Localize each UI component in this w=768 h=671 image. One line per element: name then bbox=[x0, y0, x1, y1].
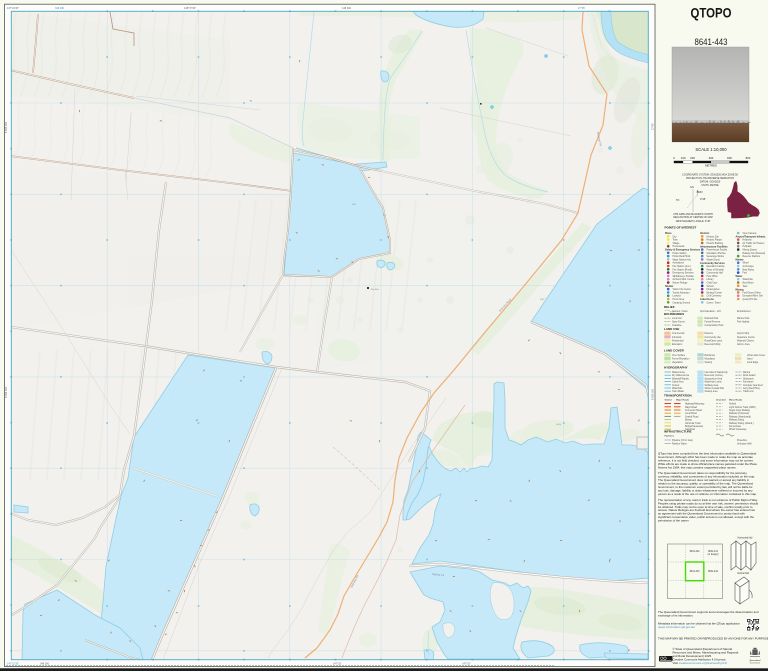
svg-text:SES/Emerg. Position: SES/Emerg. Position bbox=[673, 275, 695, 278]
svg-text:Powerhouse Facility: Powerhouse Facility bbox=[707, 249, 728, 252]
svg-text:Infrastructure Facilities: Infrastructure Facilities bbox=[700, 245, 728, 248]
svg-text:Camping Ground: Camping Ground bbox=[673, 301, 691, 304]
svg-text:Railway Siding (Aband.): Railway Siding (Aband.) bbox=[729, 422, 754, 425]
svg-text:8641-441: 8641-441 bbox=[708, 551, 718, 553]
svg-text:Forest Plantation: Forest Plantation bbox=[672, 357, 690, 360]
svg-text:147°22′30″: 147°22′30″ bbox=[7, 7, 19, 10]
svg-text:Historic: Historic bbox=[700, 232, 710, 235]
svg-text:Substation Pwrhse: Substation Pwrhse bbox=[707, 252, 727, 255]
svg-text:Minor Roads: Minor Roads bbox=[729, 400, 743, 402]
svg-text:Fuel: Fuel bbox=[743, 273, 748, 275]
svg-text:Ambulance: Ambulance bbox=[673, 262, 685, 265]
svg-text:148°37′30″: 148°37′30″ bbox=[184, 7, 196, 10]
svg-text:Lookout: Lookout bbox=[673, 295, 682, 298]
svg-text:Spot Elevation - 123: Spot Elevation - 123 bbox=[700, 310, 721, 313]
svg-text:Village: Village bbox=[673, 243, 681, 245]
svg-text:Canal Area: Canal Area bbox=[672, 381, 684, 384]
svg-text:Community Services: Community Services bbox=[700, 262, 725, 265]
svg-text:School: School bbox=[707, 286, 715, 288]
svg-text:TN: TN bbox=[676, 199, 680, 202]
svg-text:8641-443: 8641-443 bbox=[690, 571, 700, 573]
svg-text:Mia Mia: Mia Mia bbox=[371, 289, 379, 291]
svg-text:Library: Library bbox=[707, 278, 715, 281]
svg-text:Railway Siding: Railway Siding bbox=[729, 420, 745, 422]
svg-text:346 000: 346 000 bbox=[40, 663, 50, 666]
svg-text:Boat Ramp: Boat Ramp bbox=[743, 268, 755, 271]
svg-text:Reservoir/Utility: Reservoir/Utility bbox=[705, 343, 722, 346]
svg-text:Foreshore: Foreshore bbox=[743, 381, 754, 384]
svg-text:Marina: Marina bbox=[743, 371, 751, 374]
svg-text:Tidal Limit: Tidal Limit bbox=[743, 390, 754, 393]
svg-text:6 935 000: 6 935 000 bbox=[5, 121, 8, 133]
svg-text:Unknown Well: Unknown Well bbox=[737, 443, 752, 445]
svg-text:Helipads: Helipads bbox=[743, 246, 753, 248]
svg-text:SCALE 1:10,000: SCALE 1:10,000 bbox=[695, 147, 727, 152]
svg-text:Police Station: Police Station bbox=[673, 252, 688, 255]
svg-text:LAND COVER: LAND COVER bbox=[664, 349, 685, 353]
svg-text:Anchorage: Anchorage bbox=[743, 265, 755, 268]
svg-text:DECLINATION AT CENTRE OF MAP: DECLINATION AT CENTRE OF MAP bbox=[673, 216, 713, 219]
svg-text:Post Office: Post Office bbox=[707, 275, 719, 278]
svg-text:Town: Town bbox=[673, 240, 679, 242]
svg-text:Vegetation: Vegetation bbox=[672, 361, 684, 364]
svg-text:Compare Sea Reef: Compare Sea Reef bbox=[743, 384, 763, 387]
svg-text:Visit creativecommons.org/lice: Visit creativecommons.org/licenses/by/4.… bbox=[673, 661, 730, 665]
svg-text:Sealed: Sealed bbox=[665, 400, 673, 402]
svg-text:person as a result of the use: person as a result of the use or relianc… bbox=[658, 492, 757, 496]
svg-text:Medical Centre: Medical Centre bbox=[707, 291, 723, 294]
svg-text:Heliports: Heliports bbox=[743, 239, 753, 242]
svg-text:Fire Station (Rural): Fire Station (Rural) bbox=[673, 268, 693, 271]
svg-text:Major Road: Major Road bbox=[685, 406, 698, 409]
svg-text:8641-442: 8641-442 bbox=[708, 571, 718, 573]
svg-text:600: 600 bbox=[727, 156, 732, 160]
svg-text:Waterhole: Waterhole bbox=[743, 278, 754, 281]
svg-text:exchange of its information.: exchange of its information. bbox=[658, 614, 694, 618]
svg-text:HYDROGRAPHY: HYDROGRAPHY bbox=[664, 366, 688, 370]
svg-text:Pipelines: Pipelines bbox=[665, 436, 675, 438]
svg-text:Major Station Hist.: Major Station Hist. bbox=[673, 258, 692, 261]
svg-text:Highway/Motorway: Highway/Motorway bbox=[685, 403, 705, 406]
svg-text:Bore/Drain: Bore/Drain bbox=[743, 282, 755, 285]
svg-text:Woodland: Woodland bbox=[705, 358, 716, 360]
svg-text:Marine: Marine bbox=[736, 259, 745, 262]
svg-text:RELIEF: RELIEF bbox=[664, 305, 675, 309]
svg-text:Visitor Info Centre: Visitor Info Centre bbox=[673, 288, 692, 291]
svg-text:Sugar Cane Railway: Sugar Cane Railway bbox=[729, 409, 751, 412]
svg-text:8641-444: 8641-444 bbox=[690, 551, 700, 553]
svg-text:Government: Government bbox=[750, 662, 761, 665]
svg-text:Bridge/Causeway: Bridge/Causeway bbox=[685, 425, 704, 428]
svg-text:Airfield: Airfield bbox=[729, 403, 737, 406]
svg-text:GN: GN bbox=[690, 186, 694, 189]
svg-text:200: 200 bbox=[690, 156, 695, 160]
svg-text:Departure Centre: Departure Centre bbox=[737, 336, 755, 339]
svg-text:Pipeline (Oil or Gas): Pipeline (Oil or Gas) bbox=[672, 439, 693, 442]
svg-text:Waterhole: Waterhole bbox=[672, 387, 683, 390]
svg-text:8641-443: 8641-443 bbox=[695, 37, 728, 47]
svg-text:Railway (Abandoned): Railway (Abandoned) bbox=[729, 415, 751, 418]
svg-text:Rainforest: Rainforest bbox=[705, 354, 716, 357]
svg-text:Place: Place bbox=[665, 232, 672, 235]
svg-text:Spillway Area: Spillway Area bbox=[705, 384, 720, 387]
svg-text:Airport/Transport Infrastr.: Airport/Transport Infrastr. bbox=[736, 236, 767, 239]
svg-text:Marine Park: Marine Park bbox=[737, 317, 750, 320]
svg-text:Sewerage Works: Sewerage Works bbox=[707, 255, 725, 258]
svg-text:Fire Station (Aux.): Fire Station (Aux.) bbox=[673, 265, 692, 268]
svg-text:Culvert: Culvert bbox=[672, 384, 680, 387]
svg-text:(430): (430) bbox=[556, 424, 561, 426]
svg-text:Admin. Area: Admin. Area bbox=[737, 343, 750, 346]
svg-text:BOUNDARIES: BOUNDARIES bbox=[664, 312, 684, 316]
svg-text:Place of Worship: Place of Worship bbox=[707, 268, 725, 271]
svg-text:Tourist Attraction: Tourist Attraction bbox=[673, 291, 691, 294]
svg-text:Urban-tank Cover: Urban-tank Cover bbox=[747, 354, 765, 357]
svg-text:Air Traffic Ctrl Towers: Air Traffic Ctrl Towers bbox=[743, 242, 766, 245]
svg-text:THIS MAP MAY BE PRINTED OR REP: THIS MAP MAY BE PRINTED OR REPRODUCED BY… bbox=[658, 637, 768, 641]
svg-text:Dry Watercourse: Dry Watercourse bbox=[672, 374, 690, 377]
svg-text:Community Use: Community Use bbox=[705, 336, 722, 339]
svg-text:Railway Stn (Disused): Railway Stn (Disused) bbox=[743, 252, 766, 255]
svg-text:Kindergarten: Kindergarten bbox=[707, 288, 721, 291]
svg-text:Saline Coastal Flat: Saline Coastal Flat bbox=[705, 387, 725, 390]
svg-text:Label Icons: Label Icons bbox=[700, 298, 714, 301]
svg-text:INFRASTRUCTURE: INFRASTRUCTURE bbox=[664, 430, 692, 434]
svg-text:Connector Road: Connector Road bbox=[685, 409, 702, 412]
svg-text:Historic Plaque: Historic Plaque bbox=[707, 239, 723, 242]
svg-text:Vine Surface: Vine Surface bbox=[672, 354, 686, 357]
svg-text:Embankment: Embankment bbox=[737, 310, 751, 313]
svg-text:Ambient Med. Centre: Ambient Med. Centre bbox=[673, 278, 695, 281]
svg-text:Waterhole Limits: Waterhole Limits bbox=[705, 381, 723, 384]
svg-text:Major Roads: Major Roads bbox=[676, 400, 690, 402]
svg-text:Reservoir (online): Reservoir (online) bbox=[705, 374, 723, 377]
svg-text:Sand: Sand bbox=[747, 358, 753, 360]
svg-text:Airport Strip: Airport Strip bbox=[737, 332, 750, 335]
svg-text:Waterski Observ.: Waterski Observ. bbox=[737, 339, 755, 342]
svg-text:27°35′: 27°35′ bbox=[578, 7, 586, 10]
svg-text:Picnic Area: Picnic Area bbox=[673, 298, 685, 301]
svg-text:(in design): (in design) bbox=[708, 554, 719, 556]
svg-text:Swamp: Swamp bbox=[705, 362, 713, 364]
svg-text:POINTS OF INTEREST: POINTS OF INTEREST bbox=[665, 225, 697, 229]
svg-text:Forest Reserve: Forest Reserve bbox=[705, 321, 721, 324]
svg-text:Horizontal fold: Horizontal fold bbox=[738, 537, 753, 540]
svg-text:Rock Awash: Rock Awash bbox=[743, 374, 756, 377]
svg-text:346 000: 346 000 bbox=[55, 7, 65, 10]
svg-text:Powerline: Powerline bbox=[737, 439, 748, 442]
svg-text:Commercial: Commercial bbox=[672, 332, 685, 335]
svg-text:Unsealed: Unsealed bbox=[716, 400, 726, 402]
svg-text:Vehicular Track: Vehicular Track bbox=[685, 422, 702, 425]
svg-text:Local Gvt: Local Gvt bbox=[672, 317, 682, 320]
svg-text:147°25′: 147°25′ bbox=[333, 663, 342, 666]
svg-text:800: 800 bbox=[746, 156, 751, 160]
svg-text:6 934 000: 6 934 000 bbox=[5, 386, 8, 398]
svg-text:Industrial: Industrial bbox=[672, 336, 682, 339]
svg-text:Child Care: Child Care bbox=[707, 282, 719, 285]
svg-text:Reserve Stations: Reserve Stations bbox=[743, 255, 761, 258]
svg-text:147°25′: 147°25′ bbox=[462, 663, 471, 666]
svg-text:Swamp area: Swamp area bbox=[705, 390, 719, 393]
svg-text:6 933 000: 6 933 000 bbox=[652, 388, 655, 400]
svg-text:Shipwreck: Shipwreck bbox=[743, 377, 754, 380]
svg-text:Quarry/Pit Site: Quarry/Pit Site bbox=[743, 298, 759, 301]
svg-text:State Forest: State Forest bbox=[672, 321, 685, 324]
svg-text:Intermittent Waterbody: Intermittent Waterbody bbox=[705, 371, 729, 374]
svg-text:Land Edge: Land Edge bbox=[747, 362, 759, 364]
svg-text:400: 400 bbox=[709, 156, 714, 160]
svg-text:Conservation Park: Conservation Park bbox=[705, 324, 725, 327]
svg-text:148 000: 148 000 bbox=[342, 7, 352, 10]
svg-text:Education: Education bbox=[672, 343, 683, 346]
svg-text:Fish Habitat: Fish Habitat bbox=[737, 321, 750, 324]
svg-text:Watercourse: Watercourse bbox=[672, 371, 686, 374]
svg-text:Mining: Mining bbox=[736, 288, 745, 291]
svg-text:TRANSPORTATION: TRANSPORTATION bbox=[664, 394, 692, 398]
svg-text:Nature Refuge: Nature Refuge bbox=[673, 282, 689, 285]
svg-text:Rural/Open Land: Rural/Open Land bbox=[705, 339, 723, 342]
svg-text:Waterfall Rapids: Waterfall Rapids bbox=[672, 377, 690, 380]
svg-text:Extractive/Mine Site: Extractive/Mine Site bbox=[743, 295, 764, 298]
svg-text:Sealed Road: Sealed Road bbox=[685, 416, 699, 418]
svg-text:GRID MAGNETIC ANGLE: 0°48′: GRID MAGNETIC ANGLE: 0°48′ bbox=[676, 220, 711, 223]
svg-text:UNITS: METRE: UNITS: METRE bbox=[701, 184, 719, 187]
svg-text:MN: MN bbox=[699, 191, 703, 194]
svg-text:0°48′: 0°48′ bbox=[700, 198, 706, 201]
svg-text:qtopo.information.qld.gov.au/: qtopo.information.qld.gov.au/ bbox=[658, 625, 699, 629]
svg-text:Local Road: Local Road bbox=[685, 413, 697, 415]
svg-text:Education Facility: Education Facility bbox=[707, 265, 726, 268]
svg-text:Jetty (Reef/Tow): Jetty (Reef/Tow) bbox=[743, 387, 760, 390]
svg-text:LAND USE: LAND USE bbox=[664, 327, 679, 331]
svg-text:Comm. Tower: Comm. Tower bbox=[707, 301, 721, 304]
svg-text:QTOPO: QTOPO bbox=[691, 5, 732, 21]
svg-text:Names Act 1994, this map conta: Names Act 1994, this map contains ungaze… bbox=[658, 465, 737, 469]
svg-text:Fuel/Gravel Other: Fuel/Gravel Other bbox=[743, 291, 761, 294]
svg-text:Historic Site: Historic Site bbox=[707, 235, 720, 238]
svg-text:Wharf: Wharf bbox=[743, 262, 749, 265]
svg-text:METRES: METRES bbox=[705, 164, 717, 168]
svg-text:Shelter: Shelter bbox=[665, 285, 674, 288]
svg-text:Safety & Emergency Services: Safety & Emergency Services bbox=[665, 249, 701, 252]
svg-text:Byway: Byway bbox=[685, 420, 693, 422]
svg-text:Water: Water bbox=[736, 275, 743, 278]
svg-text:Pipeline Water: Pipeline Water bbox=[672, 442, 687, 445]
svg-text:Mining Quarry: Mining Quarry bbox=[743, 249, 758, 252]
svg-text:100: 100 bbox=[681, 156, 686, 160]
svg-text:Wharf Causeway: Wharf Causeway bbox=[729, 428, 747, 431]
svg-text:147°22′30″: 147°22′30″ bbox=[7, 663, 19, 666]
svg-text:Aquaculture Area: Aquaculture Area bbox=[705, 377, 723, 380]
svg-text:Fence/Gate: Fence/Gate bbox=[729, 425, 742, 428]
svg-text:Railway (Proposed): Railway (Proposed) bbox=[729, 412, 749, 415]
svg-text:Defence: Defence bbox=[705, 333, 714, 335]
svg-text:Vertical fold: Vertical fold bbox=[737, 572, 750, 575]
svg-text:Community Hall: Community Hall bbox=[707, 272, 724, 275]
svg-text:Light Vehicle Track (4WD): Light Vehicle Track (4WD) bbox=[729, 406, 756, 409]
svg-text:permission of the owner: permission of the owner bbox=[658, 519, 689, 523]
svg-text:27°40′: 27°40′ bbox=[652, 122, 655, 130]
svg-text:Residential: Residential bbox=[672, 339, 684, 342]
svg-text:Emergency Services: Emergency Services bbox=[673, 272, 695, 275]
svg-text:National Park: National Park bbox=[705, 317, 720, 320]
svg-text:Police Beat/Hmld: Police Beat/Hmld bbox=[673, 255, 691, 258]
